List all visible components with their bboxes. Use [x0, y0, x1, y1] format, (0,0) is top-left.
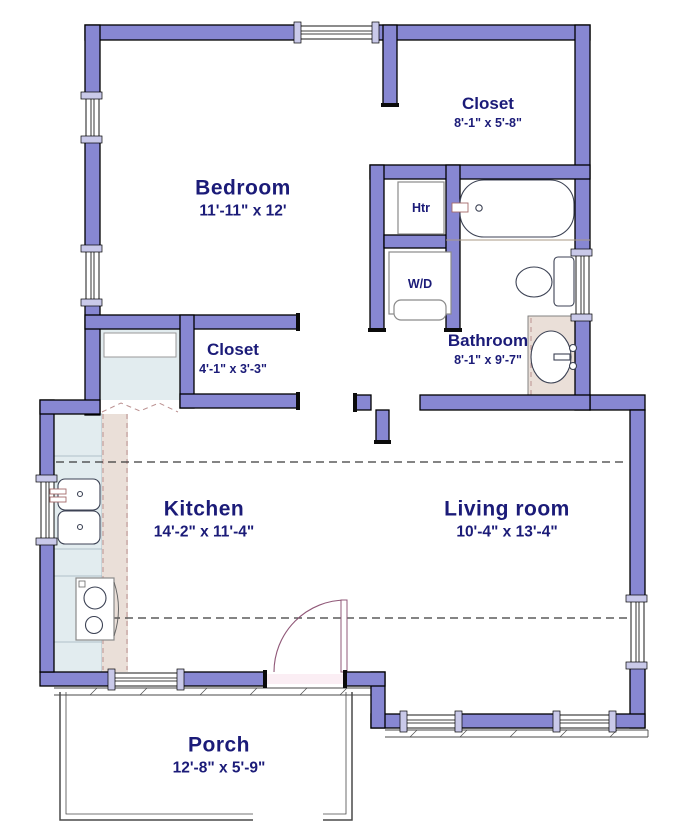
- room-dims: 8'-1" x 5'-8": [454, 115, 522, 131]
- bifold-door: [102, 403, 178, 412]
- room-dims: 4'-1" x 3'-3": [199, 361, 267, 377]
- room-name: Porch: [173, 731, 266, 758]
- window: [81, 245, 102, 306]
- room-name: Bathroom: [448, 330, 528, 352]
- room-dims: 14'-2" x 11'-4": [154, 523, 255, 543]
- stove-icon: [76, 578, 119, 640]
- room-label-closet-small: Closet 4'-1" x 3'-3": [199, 339, 267, 377]
- room-label-bedroom: Bedroom 11'-11" x 12': [195, 174, 291, 221]
- room-name: Closet: [199, 339, 267, 361]
- porch-outline: [54, 688, 648, 820]
- floor-plan-canvas: [0, 0, 695, 832]
- room-label-closet-top: Closet 8'-1" x 5'-8": [454, 93, 522, 131]
- small-closet-interior: [100, 329, 180, 400]
- front-door: [267, 600, 347, 684]
- room-label-bathroom: Bathroom 8'-1" x 9'-7": [448, 330, 528, 368]
- room-name: Bedroom: [195, 174, 291, 201]
- bathtub-icon: [446, 180, 590, 240]
- room-dims: 10'-4" x 13'-4": [444, 523, 570, 543]
- room-name: Closet: [454, 93, 522, 115]
- window: [626, 595, 647, 669]
- window: [81, 92, 102, 143]
- heater-label: Htr: [412, 201, 430, 215]
- window: [553, 711, 616, 732]
- window: [294, 22, 379, 43]
- toilet-icon: [516, 257, 574, 306]
- room-label-living-room: Living room 10'-4" x 13'-4": [444, 495, 570, 542]
- floor-plan: Bedroom 11'-11" x 12' Closet 8'-1" x 5'-…: [0, 0, 695, 832]
- room-dims: 11'-11" x 12': [195, 202, 291, 222]
- window: [400, 711, 462, 732]
- window: [108, 669, 184, 690]
- room-dims: 12'-8" x 5'-9": [173, 759, 266, 779]
- room-dims: 8'-1" x 9'-7": [448, 352, 528, 368]
- room-name: Living room: [444, 495, 570, 522]
- washer-dryer-label: W/D: [408, 277, 432, 291]
- room-label-kitchen: Kitchen 14'-2" x 11'-4": [154, 495, 255, 542]
- window: [36, 475, 57, 545]
- room-name: Kitchen: [154, 495, 255, 522]
- room-label-porch: Porch 12'-8" x 5'-9": [173, 731, 266, 778]
